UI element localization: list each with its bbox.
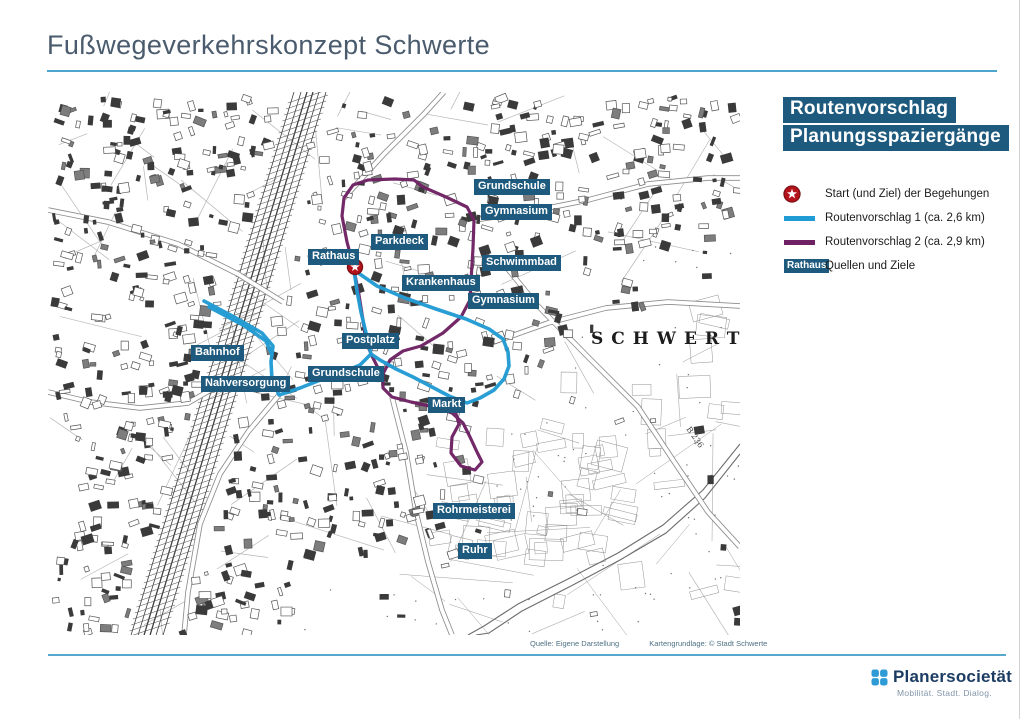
- city-map: SCHWERTEB 236 GrundschuleGymnasiumParkde…: [48, 92, 740, 635]
- map-label-layer: GrundschuleGymnasiumParkdeckRathausSchwi…: [48, 92, 740, 635]
- quellen-ziele-tag: Rathaus: [784, 259, 829, 273]
- map-label-postplatz: Postplatz: [342, 333, 399, 349]
- legend-item: Start (und Ziel) der Begehungen: [783, 182, 1018, 206]
- start-star-icon: [783, 185, 801, 203]
- map-label-nahversorgung: Nahversorgung: [201, 376, 290, 392]
- legend-item-label: Start (und Ziel) der Begehungen: [825, 188, 989, 200]
- map-label-schwimmbad: Schwimmbad: [482, 255, 561, 271]
- map-label-markt: Markt: [428, 397, 465, 413]
- logo-tagline: Mobilität. Stadt. Dialog.: [897, 688, 1012, 698]
- title-underline: [47, 70, 997, 72]
- map-label-gymnasium: Gymnasium: [468, 293, 539, 309]
- map-label-rathaus: Rathaus: [308, 249, 359, 265]
- legend-title-line1: Routenvorschlag: [783, 97, 956, 123]
- legend-panel: Routenvorschlag Planungsspaziergänge Sta…: [783, 97, 1018, 278]
- logo-wordmark: Planersocietät: [893, 667, 1012, 687]
- map-source-line: Quelle: Eigene Darstellung Kartengrundla…: [530, 639, 767, 648]
- legend-items: Start (und Ziel) der BegehungenRoutenvor…: [783, 182, 1018, 278]
- logo-cross-icon: [871, 669, 888, 686]
- source-note: Quelle: Eigene Darstellung: [530, 639, 619, 648]
- map-label-krankenhaus: Krankenhaus: [402, 275, 480, 291]
- map-label-gymnasium: Gymnasium: [481, 204, 552, 220]
- map-label-rohrmeisterei: Rohrmeisterei: [433, 503, 515, 519]
- page-title: Fußwegeverkehrskonzept Schwerte: [47, 30, 490, 61]
- legend-title-line2: Planungsspaziergänge: [783, 125, 1009, 151]
- map-label-bahnhof: Bahnhof: [191, 345, 244, 361]
- legend-item: RathausQuellen und Ziele: [783, 254, 1018, 278]
- legend-item-label: Routenvorschlag 2 (ca. 2,9 km): [825, 236, 985, 248]
- legend-item-label: Quellen und Ziele: [825, 260, 915, 272]
- planersocietaet-logo: Planersocietät Mobilität. Stadt. Dialog.: [871, 667, 1012, 698]
- map-label-grundschule: Grundschule: [474, 179, 550, 195]
- route-line-swatch: [784, 216, 815, 221]
- map-label-parkdeck: Parkdeck: [371, 234, 428, 250]
- map-label-grundschule: Grundschule: [308, 366, 384, 382]
- legend-item-label: Routenvorschlag 1 (ca. 2,6 km): [825, 212, 985, 224]
- route-line-swatch: [784, 240, 815, 245]
- map-label-ruhr: Ruhr: [458, 543, 492, 559]
- legend-item: Routenvorschlag 2 (ca. 2,9 km): [783, 230, 1018, 254]
- page-right-border: [1019, 0, 1020, 719]
- legend-item: Routenvorschlag 1 (ca. 2,6 km): [783, 206, 1018, 230]
- basemap-note: Kartengrundlage: © Stadt Schwerte: [649, 639, 767, 648]
- footer-rule: [48, 654, 1006, 656]
